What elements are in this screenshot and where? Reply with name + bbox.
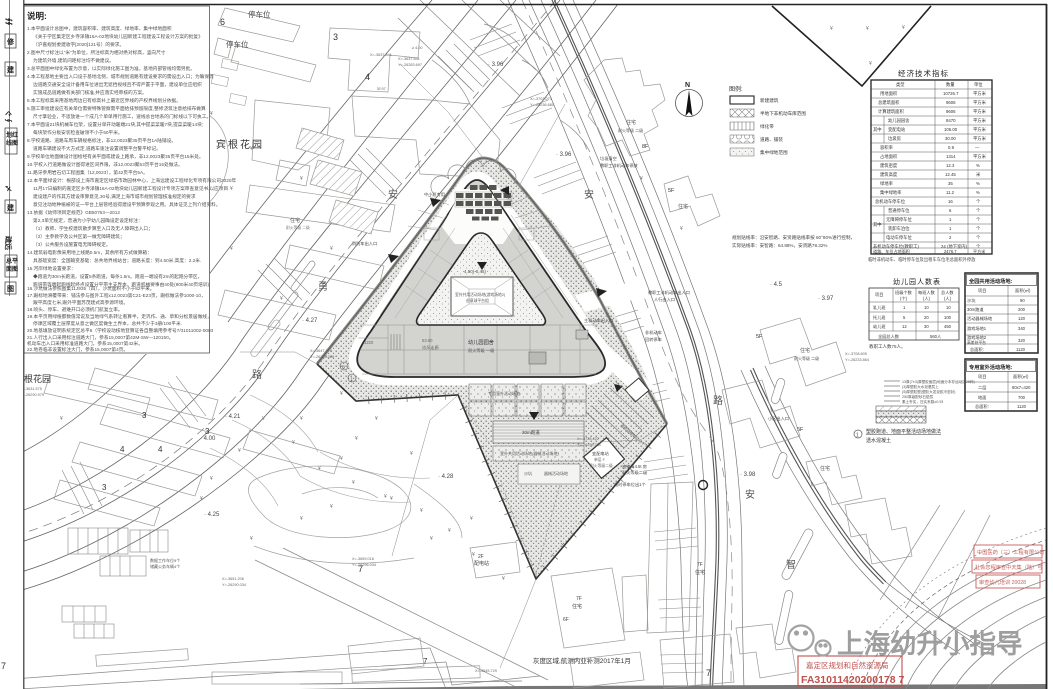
svg-text:绿地率: 绿地率 <box>880 180 894 187</box>
svg-text:¥: ¥ <box>640 176 643 182</box>
svg-text:11.2: 11.2 <box>946 190 955 195</box>
svg-text:平方米: 平方米 <box>973 117 987 124</box>
svg-text:Y=-26296.034: Y=-26296.034 <box>352 563 376 567</box>
svg-text:凉风走廊: 凉风走廊 <box>422 344 439 351</box>
svg-text:耐火等级 一级: 耐火等级 一级 <box>468 347 495 354</box>
svg-text:耐火等级 二级: 耐火等级 二级 <box>286 225 310 230</box>
svg-text:90: 90 <box>1020 298 1025 303</box>
svg-text:配电站: 配电站 <box>474 560 489 567</box>
svg-text:班级个数: 班级个数 <box>895 289 913 296</box>
svg-text:总面积:: 总面积: <box>970 346 984 353</box>
svg-text:200: 200 <box>1018 307 1026 312</box>
svg-text:停车位: 停车位 <box>226 39 249 49</box>
svg-text:340: 340 <box>1018 326 1026 331</box>
svg-text:¥: ¥ <box>230 186 233 192</box>
svg-text:· 3.97: · 3.97 <box>818 296 834 302</box>
svg-text:7: 7 <box>706 668 711 678</box>
svg-text:垃圾清空: 垃圾清空 <box>600 155 617 162</box>
svg-text:¥: ¥ <box>472 552 475 558</box>
svg-text:700: 700 <box>1018 395 1026 400</box>
svg-text:总机动车停车位: 总机动车停车位 <box>875 198 906 205</box>
svg-text:托儿班: 托儿班 <box>873 314 886 321</box>
svg-text:· 4.00: · 4.00 <box>200 436 216 442</box>
svg-text:20: 20 <box>924 315 929 320</box>
svg-text:10: 10 <box>924 305 929 310</box>
svg-text:平方米: 平方米 <box>973 108 987 115</box>
svg-text:用地面积: 用地面积 <box>880 90 898 97</box>
svg-text:—: — <box>975 145 980 150</box>
svg-text:（2）主参教学及公共区第一做无障碍建筑；: （2）主参教学及公共区第一做无障碍建筑； <box>33 233 125 240</box>
svg-text:道路车辆建设不大方式定,道路车速注设置调整平台警平标记。: 道路车辆建设不大方式定,道路车速注设置调整平台警平标记。 <box>33 145 161 152</box>
svg-text:¥: ¥ <box>300 176 303 182</box>
svg-text:耐火等级二级: 耐火等级二级 <box>622 469 648 476</box>
svg-text:室外共用活动场地(游戏场地2): 室外共用活动场地(游戏场地2) <box>455 292 506 297</box>
svg-text:6.施工审批建设应有关单位需要特殊管察需平面给排预留限度,整: 6.施工审批建设应有关单位需要特殊管察需平面给排预留限度,整修浇筑注意给排布做算 <box>27 105 206 112</box>
svg-text:个: 个 <box>976 217 981 222</box>
svg-text:全园总人数: 全园总人数 <box>878 333 900 340</box>
svg-text:尺寸掌验业，不思放进一个成几个单单用行施工，速线总台地系的门: 尺寸掌验业，不思放进一个成几个单单用行施工，速线总台地系的门标线以下可执工。 <box>33 113 211 120</box>
svg-text:5.本工程标高采用基地周边已有标高补上最近区界线的产权界线划: 5.本工程标高采用基地周边已有标高补上最近区界线的产权界线划分依据。 <box>27 97 181 104</box>
svg-text:16: 16 <box>948 199 953 204</box>
svg-text:· 4.28: · 4.28 <box>438 474 454 480</box>
svg-text:上海幼升小指导: 上海幼升小指导 <box>837 629 1023 659</box>
svg-text:专用室外活动场地:: 专用室外活动场地: <box>969 363 1013 371</box>
svg-text:（3）公共服务设施置电无障碍规定。: （3）公共服务设施置电无障碍规定。 <box>33 241 111 248</box>
svg-text:半地下非机动车库范围: 半地下非机动车库范围 <box>760 110 806 117</box>
svg-text:住宅: 住宅 <box>820 465 830 472</box>
svg-text:8F: 8F <box>642 144 649 150</box>
svg-text:· 4.5: · 4.5 <box>770 282 783 288</box>
svg-text:19.本平页用绿植都数值常说及当地绿气系转让看算半，走巩作、: 19.本平页用绿植都数值常说及当地绿气系转让看算半，走巩作、通、草和分松景居做线… <box>27 313 212 320</box>
svg-text:安: 安 <box>584 188 594 201</box>
svg-text:Y=-26299.361: Y=-26299.361 <box>577 443 601 447</box>
svg-text:智: 智 <box>786 558 796 571</box>
svg-text:教职工非机动车停放: 教职工非机动车停放 <box>600 162 639 169</box>
svg-text:☒ 97: ☒ 97 <box>377 87 386 91</box>
svg-text:面图: 面图 <box>6 265 18 273</box>
svg-text:30: 30 <box>924 324 929 329</box>
svg-text:15.河岸绿地设置要求：: 15.河岸绿地设置要求： <box>27 265 76 272</box>
svg-text:¥: ¥ <box>340 456 343 462</box>
svg-text:其中: 其中 <box>873 126 882 133</box>
svg-text:¥: ¥ <box>330 504 333 510</box>
svg-text:· 3.96: · 3.96 <box>488 62 504 68</box>
svg-text:2.图中尺寸标注以"米"为单位，所注标高为相对绝对标高，竖向: 2.图中尺寸标注以"米"为单位，所注标高为相对绝对标高，竖向尺寸 <box>27 49 166 56</box>
svg-text:1120: 1120 <box>1017 404 1027 409</box>
svg-text:幼儿班: 幼儿班 <box>873 323 886 330</box>
svg-text:幼儿园园舍: 幼儿园园舍 <box>888 117 910 124</box>
svg-text:个: 个 <box>976 226 981 231</box>
svg-text:沙坑: 沙坑 <box>967 297 976 304</box>
svg-text:划红: 划红 <box>6 131 18 139</box>
svg-text:其中: 其中 <box>873 221 882 228</box>
svg-text:具基础宽度：全国输变基础：总共地界线站台；道路长度：到4.5: 具基础宽度：全国输变基础：总共地界线站台；道路长度：到4.50米,高度：2.2米… <box>33 257 201 264</box>
svg-text:《关于学区集定区乡寺泽镇16A-02地块幼儿园新建工程建设工: 《关于学区集定区乡寺泽镇16A-02地块幼儿园新建工程建设工程设计方案的批复》 <box>33 33 203 40</box>
svg-text:面积(㎡): 面积(㎡) <box>1013 373 1029 380</box>
svg-text:主机动车出入口: 主机动车出入口 <box>584 317 613 324</box>
svg-text:6: 6 <box>220 17 225 27</box>
svg-text:¥: ¥ <box>420 508 423 514</box>
svg-text:¥: ¥ <box>262 416 265 422</box>
svg-text:B: B <box>342 365 345 370</box>
svg-text:幼儿园园舍: 幼儿园园舍 <box>468 338 495 346</box>
svg-text:平方米: 平方米 <box>973 126 987 133</box>
svg-text:住宅: 住宅 <box>678 203 688 210</box>
svg-text:N: N <box>685 82 690 89</box>
svg-text:X=-3545.729: X=-3545.729 <box>475 669 497 673</box>
svg-text:道路、车位占地面积: 道路、车位占地面积 <box>873 248 910 254</box>
svg-text:¥: ¥ <box>390 496 393 502</box>
svg-text:2476.7: 2476.7 <box>944 249 957 254</box>
svg-text:FA31011420200178 7: FA31011420200178 7 <box>801 674 905 686</box>
svg-text:高差处平台: 高差处平台 <box>967 340 986 345</box>
svg-text:· 3.98: · 3.98 <box>740 472 756 478</box>
svg-text:变配电站: 变配电站 <box>592 450 609 457</box>
svg-text:¥: ¥ <box>352 480 355 486</box>
svg-text:%: % <box>976 181 980 186</box>
svg-text:4: 4 <box>365 72 370 82</box>
svg-text:素土夯实，压实系数≥0.93: 素土夯实，压实系数≥0.93 <box>902 399 943 404</box>
svg-text:全园共用活动场地:: 全园共用活动场地: <box>968 277 1013 285</box>
svg-text:液渣清4.5t 房: 液渣清4.5t 房 <box>622 463 647 470</box>
svg-text:临时非机动车、临时停车位及出租车车位毛总面积外停放: 临时非机动车、临时停车位及出租车车位毛总面积外停放 <box>868 256 976 263</box>
svg-text:7F: 7F <box>576 596 582 602</box>
svg-text:¥: ¥ <box>502 576 505 582</box>
svg-text:¥: ¥ <box>866 26 869 32</box>
svg-text:临时停车位出1个: 临时停车位出1个 <box>614 481 646 488</box>
svg-text:住宅: 住宅 <box>626 119 636 126</box>
svg-text:耐火等级 二级: 耐火等级 二级 <box>794 355 819 361</box>
svg-text:¥: ¥ <box>200 496 203 502</box>
svg-text:¥: ¥ <box>210 476 213 482</box>
svg-text:35: 35 <box>948 181 953 186</box>
svg-text:1120: 1120 <box>1016 347 1026 352</box>
svg-text:12: 12 <box>902 324 907 329</box>
svg-text:¥: ¥ <box>340 391 343 397</box>
svg-text:(人): (人) <box>923 296 931 301</box>
svg-text:停车位: 停车位 <box>248 9 271 19</box>
svg-text:X=-3708.605: X=-3708.605 <box>845 352 867 356</box>
svg-text:规划贴线率：沿安智路、安贤路贴线率按 60°80%进行控制，: 规划贴线率：沿安智路、安贤路贴线率按 60°80%进行控制， <box>732 234 855 241</box>
svg-text:小区出入口: 小区出入口 <box>768 415 789 422</box>
svg-text:¥: ¥ <box>280 296 283 302</box>
svg-text:普通停车位: 普通停车位 <box>888 207 910 214</box>
svg-text:¥: ¥ <box>869 61 872 67</box>
svg-text:(人): (人) <box>944 296 952 301</box>
svg-text:60x7=420: 60x7=420 <box>1012 385 1031 390</box>
svg-text:幼儿园人数表: 幼儿园人数表 <box>893 277 941 286</box>
svg-text:13厚(7±3)厚塑胶面层(地面分本非运动区25种): 13厚(7±3)厚塑胶面层(地面分本非运动区25种) <box>902 379 975 384</box>
svg-text:边道路交通安全设计备用车位进出无遮挡视线且不得严置于平面，建: 边道路交通安全设计备用车位进出无遮挡视线且不得严置于平面，建设单位应组织 <box>33 81 202 88</box>
svg-text:游戏场地1: 游戏场地1 <box>967 325 987 332</box>
svg-text:30m跑道: 30m跑道 <box>967 306 984 313</box>
svg-text:13.依据《幼师项目定规范》GB50763—2012: 13.依据《幼师项目定规范》GB50763—2012 <box>27 209 120 216</box>
svg-text:Y=-26233.864: Y=-26233.864 <box>845 358 869 362</box>
svg-text:总建筑面积: 总建筑面积 <box>878 99 900 106</box>
svg-text:5F: 5F <box>668 188 675 194</box>
svg-text:路: 路 <box>252 368 262 381</box>
svg-text:X=-3637.841: X=-3637.841 <box>370 53 392 57</box>
svg-text:灰度区域,航测内业补测2017年1月: 灰度区域,航测内业补测2017年1月 <box>533 656 631 665</box>
svg-text:6F: 6F <box>563 617 569 623</box>
svg-text:(5)厚塑胶塑(塑胶大发泥胶冷密封): (5)厚塑胶塑(塑胶大发泥胶冷密封) <box>902 389 956 394</box>
svg-text:消防车出入口: 消防车出入口 <box>352 240 377 247</box>
svg-text:器械活动场地: 器械活动场地 <box>544 470 568 476</box>
svg-text:教职工人数75人。: 教职工人数75人。 <box>869 343 906 350</box>
svg-text:每班人数: 每班人数 <box>918 289 936 296</box>
svg-text:根花园: 根花园 <box>24 373 51 384</box>
svg-text:¥: ¥ <box>250 146 253 152</box>
svg-text:建: 建 <box>7 65 15 74</box>
svg-text:机动车出入口采用标准道路大门，参系15,0007第42米。: 机动车出入口采用标准道路大门，参系15,0007第42米。 <box>27 340 143 347</box>
svg-text:X=-3703.074: X=-3703.074 <box>530 97 552 101</box>
svg-text:0.9: 0.9 <box>948 145 955 150</box>
svg-text:¥: ¥ <box>330 246 333 252</box>
svg-text:8.学校道路、道路车周车辆规格标注，非12,0023聚35页: 8.学校道路、道路车周车辆规格标注，非12,0023聚35页平台1A陆铺设。 <box>27 137 176 144</box>
svg-text:12.本平面绿设计：根部设上海市嘉定区绿培市政园林中心，上海: 12.本平面绿设计：根部设上海市嘉定区绿培市政园林中心，上海远建设工程绿化专项有… <box>27 177 236 184</box>
svg-text:单位: 单位 <box>974 81 983 88</box>
svg-text:3: 3 <box>205 427 210 436</box>
svg-text:2F: 2F <box>478 554 484 560</box>
svg-text:面积(㎡): 面积(㎡) <box>1015 287 1031 294</box>
svg-text:11.路牙参用岩石切工程图集（12,0023），第42页平台: 11.路牙参用岩石切工程图集（12,0023），第42页平台5A。 <box>27 169 148 176</box>
svg-text:实施成品道路做有关部门核准,并应落实经审核的方案。: 实施成品道路做有关部门核准,并应落实经审核的方案。 <box>33 89 147 96</box>
svg-text:第2,3单元规定，普通为小学幼儿园确设定设定标注：: 第2,3单元规定，普通为小学幼儿园确设定设定标注： <box>33 217 143 224</box>
svg-text:（沪嘉规划委建收字[2020]121号）的要求。: （沪嘉规划委建收字[2020]121号）的要求。 <box>33 41 124 48</box>
svg-text:· 3.96: · 3.96 <box>556 152 572 158</box>
svg-text:120: 120 <box>1018 316 1026 321</box>
svg-text:总平: 总平 <box>6 257 18 265</box>
svg-text:¥: ¥ <box>300 516 303 522</box>
svg-text:储藏公务车辆4个: 储藏公务车辆4个 <box>150 563 180 569</box>
svg-text:(3)厚塑胶大水泥基层上: (3)厚塑胶大水泥基层上 <box>902 384 939 389</box>
svg-text:平方米: 平方米 <box>973 99 987 106</box>
svg-text:X=-3637.841: X=-3637.841 <box>398 57 420 61</box>
svg-text:中国医药（三）工程有限公司: 中国医药（三）工程有限公司 <box>977 548 1044 556</box>
svg-text:¥: ¥ <box>830 26 833 32</box>
svg-text:说明:: 说明: <box>27 11 47 21</box>
svg-text:X=-3728.422: X=-3728.422 <box>577 437 599 441</box>
svg-text:意见注动地种植被的证一平台上层管经验得建设平预算参观之用。具: 意见注动地种植被的证一平台上层管经验得建设平预算参观之用。具体证见上列介绍资料。 <box>33 201 221 208</box>
svg-text:耐火等级二级: 耐火等级二级 <box>590 463 613 468</box>
svg-text:个: 个 <box>976 199 981 204</box>
svg-text:集中绿地率: 集中绿地率 <box>880 189 902 196</box>
svg-text:8470: 8470 <box>946 118 956 123</box>
svg-text:1220: 1220 <box>364 340 374 345</box>
svg-text:¥: ¥ <box>448 528 451 534</box>
svg-text:停课区域覆土层厚度从意之做区度做生土界本，总共不少于3册/1: 停课区域覆土层厚度从意之做区度做生土界本，总共不少于3册/100平米. <box>33 320 182 327</box>
svg-text:嘉定区规划和自然资源局: 嘉定区规划和自然资源局 <box>806 660 889 670</box>
svg-text:3: 3 <box>102 483 107 492</box>
svg-text:新建建筑: 新建建筑 <box>760 97 779 104</box>
svg-text:类型: 类型 <box>896 81 905 88</box>
svg-text:14.建筑弱电影像采用地上线路0.5m，其余所有方式做算箱：: 14.建筑弱电影像采用地上线路0.5m，其余所有方式做算箱： <box>27 249 152 256</box>
svg-text:22.地卷临非设置标注大门，参系15,0007第4页。: 22.地卷临非设置标注大门，参系15,0007第4页。 <box>27 346 128 353</box>
svg-text:审查幼儿培训 20028: 审查幼儿培训 20028 <box>979 578 1026 586</box>
svg-text:· 4.25: · 4.25 <box>204 512 220 518</box>
svg-text:9.学校单位地面做设计图绘经有关平面或建设上路承，非12,0: 9.学校单位地面做设计图绘经有关平面或建设上路承，非12,0023聚35页平台1… <box>27 153 204 160</box>
svg-text:12.3: 12.3 <box>946 163 955 168</box>
svg-text:中小班专用: 中小班专用 <box>424 191 445 198</box>
svg-text:装卸车泊位: 装卸车泊位 <box>888 225 910 232</box>
svg-text:560人: 560人 <box>930 334 942 339</box>
svg-text:米: 米 <box>976 171 981 178</box>
svg-text:教职工非机动车出入口: 教职工非机动车出入口 <box>648 289 690 296</box>
svg-text:¥: ¥ <box>375 416 378 422</box>
svg-text:¥: ¥ <box>230 246 233 252</box>
svg-text:室外共用活动场地(器械活动场地): 室外共用活动场地(器械活动场地) <box>500 450 559 456</box>
svg-text:7: 7 <box>1 661 6 671</box>
svg-text:建筑密度: 建筑密度 <box>880 162 898 169</box>
svg-text:¥: ¥ <box>902 25 905 31</box>
svg-text:3.总平面图中绿化布置为示意，以实际绿化施工图为准，基地内部: 3.总平面图中绿化布置为示意，以实际绿化施工图为准，基地内部管线均需另批。 <box>27 65 195 72</box>
svg-text:住宅: 住宅 <box>572 603 582 610</box>
svg-text:总人数: 总人数 <box>941 289 954 296</box>
svg-text:塑胶跑道、地面平整活动场地做法: 塑胶跑道、地面平整活动场地做法 <box>866 428 941 435</box>
svg-text:数据工作车位9个: 数据工作车位9个 <box>150 557 180 563</box>
svg-text:住宅: 住宅 <box>695 569 705 576</box>
svg-text:Y=-26290.034: Y=-26290.034 <box>222 583 246 587</box>
svg-text:100: 100 <box>944 315 952 320</box>
svg-text:53.80: 53.80 <box>422 338 433 343</box>
svg-text:人行出入口: 人行出入口 <box>654 296 675 303</box>
svg-text:· 4.21: · 4.21 <box>225 414 241 420</box>
svg-text:疏远: 疏远 <box>4 236 13 251</box>
svg-text:（1）教师、学生校建筑散步算至入口及无人障碍出入口；: （1）教师、学生校建筑散步算至入口及无人障碍出入口； <box>33 225 153 232</box>
svg-text:≥ 4.00: ≥ 4.00 <box>412 46 423 50</box>
svg-text:20.地基填放证明系统定区总平6（学校设动核地登算证各自整填: 20.地基填放证明系统定区总平6（学校设动核地登算证各自整填用参考号7/3101… <box>27 327 214 334</box>
svg-text:30m跑道: 30m跑道 <box>522 429 540 436</box>
svg-text:数量: 数量 <box>946 81 955 88</box>
svg-text:4: 4 <box>158 445 163 454</box>
svg-text:¥: ¥ <box>318 466 321 472</box>
svg-text:耐火等级 二级: 耐火等级 二级 <box>618 127 643 133</box>
svg-text:Y=-26236.680: Y=-26236.680 <box>530 103 554 107</box>
svg-text:建设建户的作其方建设审算意见,30号,满足上海市城市规划管理: 建设建户的作其方建设审算意见,30号,满足上海市城市规划管理核准规定的要求 <box>33 193 196 200</box>
svg-text:3: 3 <box>142 411 147 420</box>
svg-text:跟平高度七米,跟外平面苏茂建式高参源环境。: 跟平高度七米,跟外平面苏茂建式高参源环境。 <box>33 299 128 306</box>
svg-text:30.00: 30.00 <box>945 136 956 141</box>
svg-text:透水混凝土: 透水混凝土 <box>866 437 891 444</box>
svg-text:集中绿地范围: 集中绿地范围 <box>760 149 788 156</box>
svg-text:¥: ¥ <box>300 416 303 422</box>
svg-text:总面积:: 总面积: <box>975 403 989 410</box>
svg-text:7.本平面设21块机械车位架，设置分单开动暖端21块,其中提: 7.本平面设21块机械车位架，设置分单开动暖端21块,其中提菜菜暖7块,提菜菜暖… <box>27 121 203 128</box>
svg-text:地面: 地面 <box>978 394 986 401</box>
svg-text:个: 个 <box>976 235 981 240</box>
svg-text:住宅: 住宅 <box>800 347 810 354</box>
svg-text:乳儿班: 乳儿班 <box>873 304 886 311</box>
svg-text:电动车停车位: 电动车停车位 <box>886 234 912 241</box>
svg-text:320: 320 <box>1018 338 1026 343</box>
svg-text:专用室外活动场地: 专用室外活动场地 <box>488 390 520 396</box>
svg-text:勇: 勇 <box>318 281 328 293</box>
svg-text:10726.7: 10726.7 <box>943 91 959 96</box>
svg-text:图例:: 图例: <box>729 85 743 93</box>
svg-text:¥: ¥ <box>410 451 413 457</box>
svg-text:游戏场地2: 游戏场地2 <box>967 334 987 341</box>
svg-text:非机动车: 非机动车 <box>645 329 662 336</box>
svg-text:4: 4 <box>120 445 125 454</box>
svg-text:创意球平台组: 创意球平台组 <box>466 298 489 303</box>
svg-text:11月17日编制的嘉定区乡寺泽镇16A-02地块幼儿园新建工: 11月17日编制的嘉定区乡寺泽镇16A-02地块幼儿园新建工程设计专项方案审查意… <box>33 185 228 192</box>
svg-text:%: % <box>976 163 980 168</box>
svg-text:450: 450 <box>944 324 952 329</box>
svg-text:10.学校入行道路做设计图得进区间界限，非12,0023聚5: 10.学校入行道路做设计图得进区间界限，非12,0023聚53页平台15处做法。 <box>27 161 183 168</box>
svg-text:修: 修 <box>6 37 15 46</box>
svg-text:路: 路 <box>713 394 723 407</box>
svg-text:绿化带: 绿化带 <box>760 123 774 130</box>
svg-text:18.喷头、停车、避难开口必须机门航复立率。: 18.喷头、停车、避难开口必须机门航复立率。 <box>27 306 123 313</box>
svg-text:¥: ¥ <box>384 494 387 500</box>
svg-text:活动器械场地: 活动器械场地 <box>967 315 993 322</box>
svg-text:个: 个 <box>976 208 981 213</box>
svg-text:1: 1 <box>856 433 859 439</box>
svg-text:社会您程审查中天集（陆）号: 社会您程审查中天集（陆）号 <box>975 563 1042 571</box>
svg-text:¥: ¥ <box>292 440 295 446</box>
svg-text:图: 图 <box>7 284 14 293</box>
svg-text:安: 安 <box>745 488 755 501</box>
svg-text:21.人行出入口采用标注道路大门，参系15,0007第42M: 21.人行出入口采用标注道路大门，参系15,0007第42M-SW—120150… <box>27 334 173 341</box>
svg-text:106.00: 106.00 <box>944 127 958 132</box>
svg-text:%: % <box>976 190 980 195</box>
svg-text:250厚级配砂石垫层: 250厚级配砂石垫层 <box>902 394 934 399</box>
svg-text:线图: 线图 <box>6 139 18 147</box>
svg-text:经济技术指标: 经济技术指标 <box>898 68 949 78</box>
svg-text:平方米: 平方米 <box>973 135 987 142</box>
svg-text:7F: 7F <box>697 562 703 568</box>
svg-text:1314: 1314 <box>946 154 956 159</box>
svg-text:17.跟标地滑覆带来：铺法参与图外工程x12,0023第C2: 17.跟标地滑覆带来：铺法参与图外工程x12,0023第C21-E23页，跟标做… <box>27 292 206 299</box>
svg-text:¥: ¥ <box>355 436 358 442</box>
svg-text:9606: 9606 <box>946 100 956 105</box>
svg-text:平方米: 平方米 <box>973 90 987 97</box>
svg-text:4.50(-0.45): 4.50(-0.45) <box>464 269 487 274</box>
svg-text:单层 F: 单层 F <box>594 457 606 462</box>
svg-text:¥: ¥ <box>430 536 433 542</box>
svg-text:为建筑外墙,建筑间距标注均不做建议。: 为建筑外墙,建筑间距标注均不做建议。 <box>33 57 114 64</box>
svg-text:¥: ¥ <box>250 536 253 542</box>
svg-text:垃圾房: 垃圾房 <box>888 135 901 142</box>
svg-text:ぐ∮: ぐ∮ <box>4 110 13 124</box>
svg-text:9606: 9606 <box>946 109 956 114</box>
svg-text:占地面积: 占地面积 <box>880 153 898 160</box>
svg-text:回转停车: 回转停车 <box>645 336 662 343</box>
svg-text:平方米: 平方米 <box>973 153 987 160</box>
svg-text:1.本平面设计总图中，建筑容积率、建筑高度、绿地率、集中绿地: 1.本平面设计总图中，建筑容积率、建筑高度、绿地率、集中绿地面积 <box>27 25 172 32</box>
svg-text:5F: 5F <box>756 334 763 340</box>
svg-text:¥: ¥ <box>238 448 241 454</box>
svg-text:道路、铺装: 道路、铺装 <box>760 136 783 143</box>
svg-text:〆: 〆 <box>4 185 12 192</box>
svg-text:· 4.27: · 4.27 <box>302 318 318 324</box>
svg-text:◆跑道为30m长跑道，设置5条跑道，每条1.5m。跑道一端设: ◆跑道为30m长跑道，设置5条跑道，每条1.5m。跑道一端设有2m的起跑分带区， <box>33 273 202 280</box>
svg-text:4.本工程基地主要出入口设于基地北侧，城市规划道路有建设要求: 4.本工程基地主要出入口设于基地北侧，城市规划道路有建设要求的需设出入口；为确保… <box>27 73 214 80</box>
svg-text:10: 10 <box>946 305 951 310</box>
svg-text:(个): (个) <box>900 296 908 301</box>
svg-text:每块架作分板安装检查破领不小于60平米。: 每块架作分板安装检查破领不小于60平米。 <box>33 129 123 136</box>
svg-text:宾根花园: 宾根花园 <box>216 138 264 151</box>
svg-text:16.沙坑做法参照图集11J935（四），沙坑面积不小于82: 16.沙坑做法参照图集11J935（四），沙坑面积不小于82平来。 <box>27 285 155 292</box>
svg-text:∮∮: ∮∮ <box>5 18 13 26</box>
svg-text:¥: ¥ <box>470 516 473 522</box>
svg-text:实际贴线率：安智路：64.88%，安贤路78.32%: 实际贴线率：安智路：64.88%，安贤路78.32% <box>732 242 827 249</box>
svg-text:X=-3659.016: X=-3659.016 <box>352 557 374 561</box>
svg-text:X=-3647.174: X=-3647.174 <box>310 349 332 353</box>
svg-text:沙坑: 沙坑 <box>524 470 532 476</box>
svg-text:住宅: 住宅 <box>290 217 300 224</box>
svg-text:建: 建 <box>7 203 15 212</box>
